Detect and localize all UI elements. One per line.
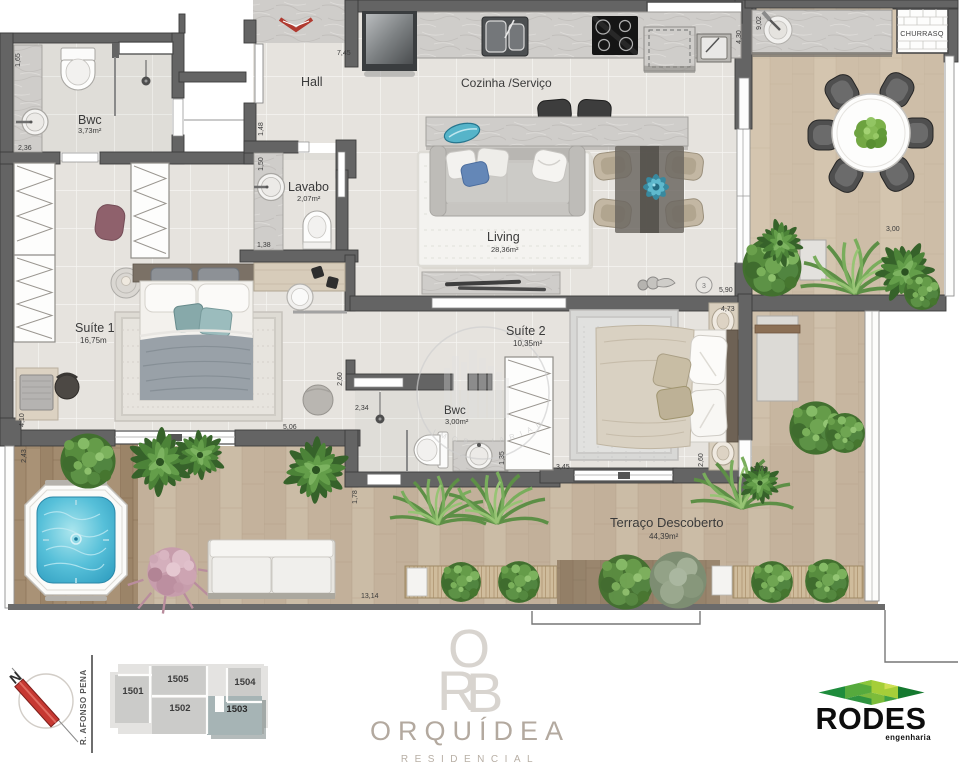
svg-text:engenharia: engenharia	[885, 733, 931, 742]
svg-text:3: 3	[702, 283, 706, 290]
svg-text:1,65: 1,65	[15, 53, 22, 67]
svg-text:R. AFONSO PENA: R. AFONSO PENA	[79, 669, 88, 745]
svg-text:Cozinha /Serviço: Cozinha /Serviço	[461, 76, 552, 90]
svg-text:9,02: 9,02	[756, 16, 763, 30]
svg-text:RESIDENCIAL: RESIDENCIAL	[401, 754, 539, 765]
svg-text:2,36: 2,36	[18, 145, 32, 152]
svg-text:3,45: 3,45	[556, 464, 570, 471]
svg-text:44,39m²: 44,39m²	[649, 532, 679, 541]
svg-text:13,14: 13,14	[361, 593, 379, 600]
svg-text:2,34: 2,34	[355, 405, 369, 412]
svg-text:1,35: 1,35	[499, 451, 506, 465]
svg-text:Lavabo: Lavabo	[288, 180, 329, 194]
svg-text:4,73: 4,73	[721, 306, 735, 313]
svg-text:1504: 1504	[234, 677, 256, 688]
svg-text:4,30: 4,30	[736, 30, 743, 44]
svg-text:1,78: 1,78	[753, 466, 767, 473]
svg-text:Bwc: Bwc	[78, 113, 102, 127]
svg-text:B: B	[466, 661, 503, 724]
svg-text:1,50: 1,50	[258, 157, 265, 171]
svg-text:1,48: 1,48	[258, 122, 265, 136]
svg-text:1502: 1502	[169, 703, 190, 714]
svg-text:4,10: 4,10	[19, 413, 26, 427]
svg-text:1,38: 1,38	[257, 242, 271, 249]
svg-text:7,45: 7,45	[337, 50, 351, 57]
svg-text:28,36m²: 28,36m²	[491, 245, 519, 254]
svg-text:5,90: 5,90	[719, 287, 733, 294]
svg-text:Living: Living	[487, 230, 520, 244]
svg-text:2,43: 2,43	[21, 449, 28, 463]
svg-text:2,60: 2,60	[698, 453, 705, 467]
svg-text:3,00: 3,00	[886, 226, 900, 233]
svg-text:2,07m²: 2,07m²	[297, 194, 321, 203]
svg-text:1505: 1505	[167, 674, 189, 685]
svg-text:RODES: RODES	[816, 702, 927, 736]
svg-text:3,73m²: 3,73m²	[78, 126, 102, 135]
svg-text:16,75m: 16,75m	[80, 336, 107, 345]
svg-text:1,78: 1,78	[352, 490, 359, 504]
svg-text:Terraço Descoberto: Terraço Descoberto	[610, 515, 723, 530]
svg-text:Hall: Hall	[301, 75, 323, 89]
svg-text:10,35m²: 10,35m²	[513, 339, 543, 348]
svg-text:Suíte 2: Suíte 2	[506, 324, 546, 338]
svg-text:Suíte 1: Suíte 1	[75, 321, 115, 335]
svg-text:1501: 1501	[122, 686, 144, 697]
svg-text:ORQUÍDEA: ORQUÍDEA	[370, 716, 570, 746]
svg-text:5,06: 5,06	[283, 424, 297, 431]
svg-text:CHURRASQ: CHURRASQ	[900, 29, 944, 38]
svg-text:2,60: 2,60	[337, 372, 344, 386]
svg-text:1503: 1503	[226, 704, 247, 715]
svg-text:Bwc: Bwc	[444, 405, 466, 417]
svg-text:3,00m²: 3,00m²	[445, 417, 469, 426]
